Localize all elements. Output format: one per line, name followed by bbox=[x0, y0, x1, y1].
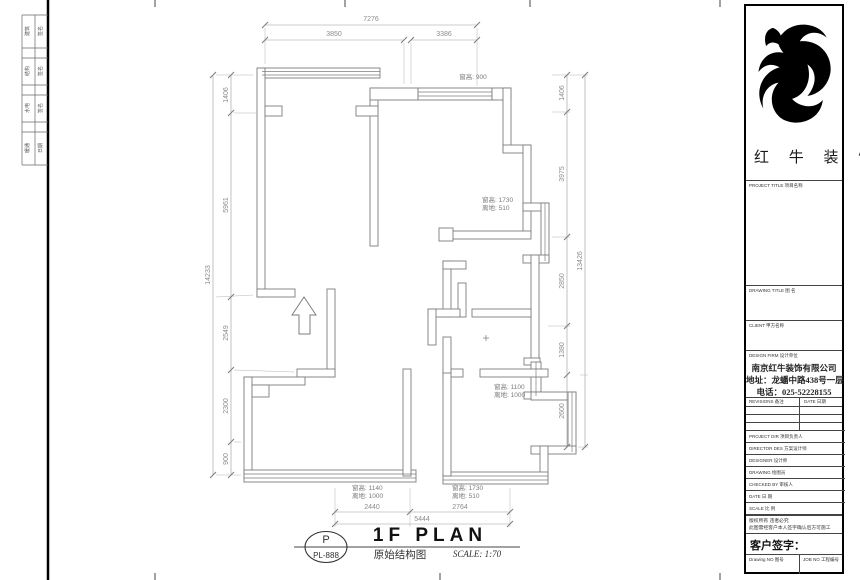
plan-scale: SCALE: 1:70 bbox=[453, 549, 502, 559]
drawing-sheet: 建筑 签名 结构 签名 水电 签名 暖通 日期 bbox=[0, 0, 860, 580]
binding-strip: 建筑 签名 结构 签名 水电 签名 暖通 日期 bbox=[22, 0, 48, 580]
dim-right-seg: 1406 bbox=[559, 85, 566, 101]
drawing-title-label: DRAWING TITLE 图 名 bbox=[746, 288, 845, 294]
strip-cell: 建筑 bbox=[24, 26, 31, 36]
dim-bottom-overall: 5444 bbox=[414, 516, 430, 523]
row-scale: SCALE 比 例 bbox=[746, 502, 845, 514]
dim-left-seg: 2300 bbox=[223, 398, 230, 414]
revisions-label: REVISIONS 备注 bbox=[749, 399, 784, 405]
dim-left-seg: 1406 bbox=[223, 87, 230, 103]
floor-plan-canvas: 建筑 签名 结构 签名 水电 签名 暖通 日期 bbox=[0, 0, 860, 580]
dim-right-seg: 2850 bbox=[559, 273, 566, 289]
drawing-tag-number: PL-888 bbox=[313, 551, 339, 560]
plan-title: 1F PLAN bbox=[373, 525, 487, 546]
dim-top-seg: 3386 bbox=[436, 31, 452, 38]
window-label: 窗高: 1100 bbox=[494, 382, 525, 391]
window-label: 离地: 510 bbox=[452, 491, 480, 500]
drawing-no-label: Drawing NO 图号 bbox=[749, 557, 784, 563]
copyright-notice: 版权所有 违者必究 bbox=[746, 517, 845, 524]
row-drawing: DRAWING 绘图员 bbox=[746, 466, 845, 478]
dim-left-seg: 2549 bbox=[223, 325, 230, 341]
walls bbox=[244, 68, 576, 484]
strip-cell: 日期 bbox=[38, 143, 44, 153]
drawing-title-group: P PL-888 1F PLAN 原始结构图 SCALE: 1:70 bbox=[294, 525, 520, 563]
row-checked-by: CHECKED BY 审核人 bbox=[746, 478, 845, 490]
row-project-dir: PROJECT DIR 项目负责人 bbox=[746, 430, 845, 442]
drawing-tag-letter: P bbox=[322, 534, 329, 546]
dim-right-seg: 3975 bbox=[559, 166, 566, 182]
dim-left-seg: 5961 bbox=[223, 197, 230, 213]
brand-name: 红 牛 装 饰 bbox=[746, 146, 842, 167]
strip-cell: 签名 bbox=[37, 103, 44, 113]
window-label: 离地: 1000 bbox=[494, 390, 525, 399]
company-address: 地址：龙蟠中路438号一层 bbox=[746, 374, 842, 386]
window-label: 离地: 1000 bbox=[352, 491, 383, 500]
strip-cell: 水电 bbox=[24, 103, 31, 113]
dim-left-seg: 900 bbox=[223, 453, 230, 465]
window-label: 窗高: 1730 bbox=[452, 483, 483, 492]
plan-subtitle: 原始结构图 bbox=[374, 548, 427, 561]
job-no-label: JOB NO 工程编号 bbox=[803, 557, 839, 563]
dim-top-seg: 3850 bbox=[326, 31, 342, 38]
row-date: DATE 日 期 bbox=[746, 490, 845, 502]
title-block: 红 牛 装 饰 PROJECT TITLE 项目名称 DRAWING TITLE… bbox=[744, 4, 844, 574]
client-signature-label: 客户签字： bbox=[746, 537, 846, 553]
dim-right-seg: 2600 bbox=[559, 403, 566, 419]
strip-cell: 结构 bbox=[24, 66, 31, 76]
row-director: DIRECTOR DES 方案设计师 bbox=[746, 442, 845, 454]
window-label: 离地: 510 bbox=[482, 203, 510, 212]
row-designer: DESIGNER 设计师 bbox=[746, 454, 845, 466]
dim-bottom-seg: 2764 bbox=[452, 504, 468, 511]
dim-top-overall: 7276 bbox=[363, 16, 379, 23]
date-col-label: DATE 日期 bbox=[804, 399, 826, 405]
company-name: 南京红牛装饰有限公司 bbox=[746, 362, 842, 374]
strip-cell: 签名 bbox=[37, 66, 44, 76]
project-title-label: PROJECT TITLE 项目名称 bbox=[746, 183, 845, 189]
redbull-logo-icon bbox=[746, 14, 842, 132]
strip-cell: 签名 bbox=[37, 26, 44, 36]
signature-notice: 此图需经客户本人签字确认后方可施工 bbox=[746, 524, 845, 531]
strip-cell: 暖通 bbox=[24, 143, 31, 153]
dim-left-overall: 14233 bbox=[205, 265, 212, 285]
window-label: 窗高: 1730 bbox=[482, 195, 513, 204]
dim-bottom-seg: 2440 bbox=[364, 504, 380, 511]
dim-right-seg: 1380 bbox=[559, 342, 566, 358]
fold-marks bbox=[155, 0, 720, 580]
design-firm-label: DESIGN FIRM 设计单位 bbox=[746, 353, 845, 359]
client-label: CLIENT 甲方名称 bbox=[746, 323, 845, 329]
window-label: 窗高: 1140 bbox=[352, 483, 383, 492]
dim-right-overall: 13426 bbox=[577, 251, 584, 271]
window-label: 窗高: 900 bbox=[459, 72, 487, 81]
entry-arrow bbox=[292, 297, 316, 334]
